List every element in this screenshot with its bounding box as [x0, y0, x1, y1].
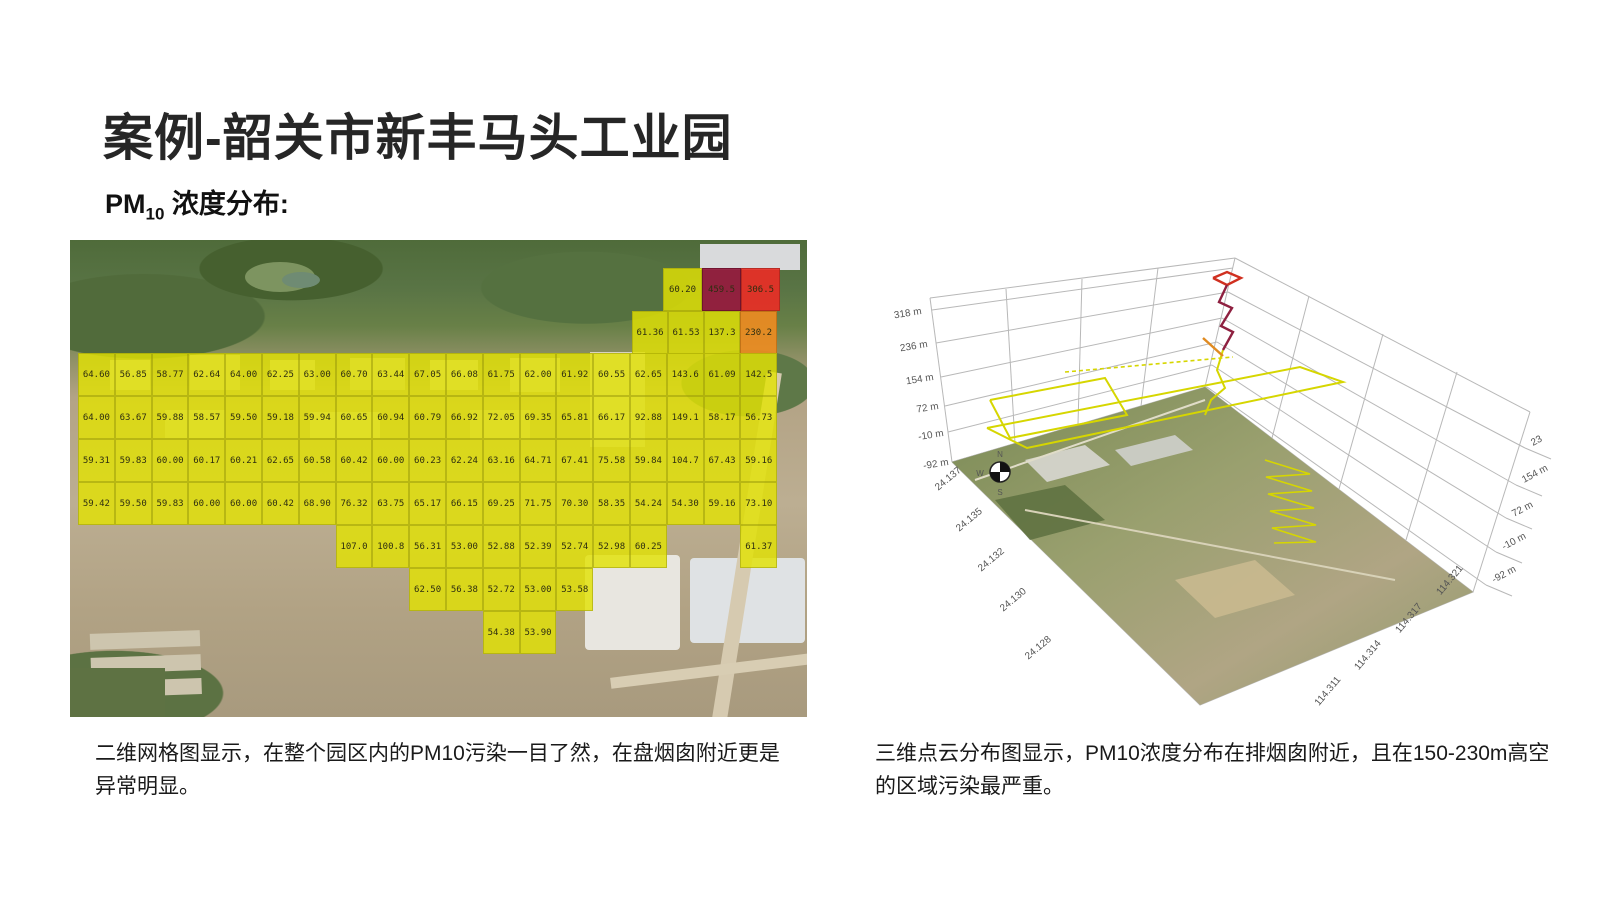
grid-cell: 63.75: [372, 482, 409, 525]
grid-cell: 64.60: [78, 353, 115, 396]
grid-cell: 58.35: [593, 482, 630, 525]
grid-cell: 62.00: [520, 353, 557, 396]
compass-label: W: [976, 469, 984, 478]
grid-cell: 60.23: [409, 439, 446, 482]
grid-cell: 69.25: [483, 482, 520, 525]
grid-cell: 60.79: [409, 396, 446, 439]
plot3d-canvas: NWS318 m236 m154 m72 m-10 m-92 m23154 m7…: [875, 250, 1575, 720]
grid-cell: 61.37: [740, 525, 777, 568]
grid-cell: 59.83: [115, 439, 152, 482]
wall-top-edge-left: [930, 258, 1235, 298]
z-tick-left: 72 m: [916, 401, 940, 415]
grid-cell: 60.94: [372, 396, 409, 439]
caption-2d-grid: 二维网格图显示，在整个园区内的PM10污染一目了然，在盘烟囱附近更是异常明显。: [95, 738, 795, 803]
subtitle-subscript: 10: [146, 204, 165, 223]
grid-cell: 63.00: [299, 353, 336, 396]
grid-cell: 60.20: [663, 268, 702, 311]
grid-cell: 54.30: [667, 482, 704, 525]
grid-cell: 58.57: [188, 396, 225, 439]
grid-cell: 59.16: [740, 439, 777, 482]
grid-cell: 63.44: [372, 353, 409, 396]
grid-cell: 56.31: [409, 525, 446, 568]
slide: 案例-韶关市新丰马头工业园 PM10 浓度分布: 60.20459.5306.5…: [0, 0, 1600, 900]
wall-gridline-overshoot: [1516, 485, 1542, 496]
grid-cell: 56.85: [115, 353, 152, 396]
grid-cell: 68.90: [299, 482, 336, 525]
grid-cell: 62.64: [188, 353, 225, 396]
grid-cell: 59.50: [225, 396, 262, 439]
wall-gridline: [1078, 279, 1082, 424]
grid-cell: 59.31: [78, 439, 115, 482]
grid-cell: 62.50: [409, 568, 446, 611]
compass-label: S: [997, 488, 1002, 497]
grid-cell: 71.75: [520, 482, 557, 525]
subtitle-prefix: PM: [105, 189, 146, 219]
wall-gridline: [941, 318, 1222, 377]
grid-cell: 107.0: [336, 525, 373, 568]
grid-cell: 60.70: [336, 353, 373, 396]
grid-cell: 67.05: [409, 353, 446, 396]
grid-cell: 63.16: [483, 439, 520, 482]
grid-cell: 59.42: [78, 482, 115, 525]
z-tick-left: -10 m: [918, 428, 945, 443]
grid-cell: 60.17: [188, 439, 225, 482]
page-title: 案例-韶关市新丰马头工业园: [103, 98, 733, 170]
grid-cell: 60.00: [372, 439, 409, 482]
grid-cell: 66.08: [446, 353, 483, 396]
wall-gridline: [1141, 268, 1158, 406]
grid-cell: 52.88: [483, 525, 520, 568]
grid-cell: 52.72: [483, 568, 520, 611]
grid-cell: 54.38: [483, 611, 520, 654]
grid-cell: 59.94: [299, 396, 336, 439]
grid-cell: 62.24: [446, 439, 483, 482]
grid-cell: 53.90: [520, 611, 557, 654]
grid-cell: 459.5: [702, 268, 741, 311]
grid-cell: 53.00: [520, 568, 557, 611]
wall-gridline: [936, 292, 1228, 343]
grid-cell: 61.92: [556, 353, 593, 396]
grid-cell: 67.43: [704, 439, 741, 482]
grid-cell: 61.09: [704, 353, 741, 396]
grid-cell: 60.65: [336, 396, 373, 439]
grid-cell: 59.50: [115, 482, 152, 525]
grid-cell: 62.65: [262, 439, 299, 482]
z-tick-right: -10 m: [1500, 531, 1528, 553]
wall-gridline-overshoot: [1486, 585, 1512, 596]
grid-cell: 72.05: [483, 396, 520, 439]
grid-cell: 61.53: [668, 311, 704, 354]
grid-cell: 62.65: [630, 353, 667, 396]
grid-cell: 56.38: [446, 568, 483, 611]
lat-tick: 24.135: [954, 506, 985, 534]
grid-cell: 54.24: [630, 482, 667, 525]
caption-3d-cloud: 三维点云分布图显示，PM10浓度分布在排烟囱附近，且在150-230m高空的区域…: [875, 738, 1555, 803]
grid-cell: 60.55: [593, 353, 630, 396]
grid-cell: 230.2: [740, 311, 777, 354]
flight-path-plume-top: [1213, 272, 1241, 285]
grid-cell: 66.15: [446, 482, 483, 525]
subtitle-suffix: 浓度分布:: [164, 189, 289, 219]
wall-gridline: [1228, 292, 1525, 448]
z-axis-right: [1473, 412, 1530, 592]
grid-cell: 53.00: [446, 525, 483, 568]
flight-path-dotted: [1065, 357, 1233, 372]
grid-cell: 66.17: [593, 396, 630, 439]
wall-gridline: [932, 268, 1233, 310]
wall-gridline-overshoot: [1506, 518, 1532, 529]
wall-gridline-overshoot: [1525, 448, 1551, 459]
grid-cell: 104.7: [667, 439, 704, 482]
lat-tick: 24.132: [976, 546, 1007, 574]
grid-cell: 52.74: [556, 525, 593, 568]
grid-cell: 65.81: [556, 396, 593, 439]
z-tick-left: 318 m: [893, 306, 922, 321]
wall-gridline: [1339, 334, 1383, 489]
grid-cell: 64.00: [78, 396, 115, 439]
grid-cell: 52.98: [593, 525, 630, 568]
grid-cell: 53.58: [556, 568, 593, 611]
satellite-map-2d: 60.20459.5306.561.3661.53137.3230.264.60…: [70, 240, 807, 717]
wall-gridline: [1406, 372, 1457, 540]
z-tick-left: 154 m: [905, 372, 934, 387]
wall-gridline-overshoot: [1496, 552, 1522, 563]
z-tick-right: 154 m: [1520, 463, 1550, 486]
grid-cell: 75.58: [593, 439, 630, 482]
grid-cell: 92.88: [630, 396, 667, 439]
grid-cell: 59.88: [152, 396, 189, 439]
grid-cell: 306.5: [741, 268, 780, 311]
grid-cell: 137.3: [704, 311, 740, 354]
lng-tick: 114.311: [1313, 674, 1344, 708]
grid-cell: 60.25: [630, 525, 667, 568]
subtitle: PM10 浓度分布:: [105, 182, 289, 224]
pm10-grid-overlay: 60.20459.5306.561.3661.53137.3230.264.60…: [70, 240, 807, 717]
grid-cell: 58.77: [152, 353, 189, 396]
grid-cell: 64.71: [520, 439, 557, 482]
grid-cell: 64.00: [225, 353, 262, 396]
grid-cell: 62.25: [262, 353, 299, 396]
z-tick-left: -92 m: [923, 457, 950, 472]
z-tick-left: 236 m: [899, 339, 928, 354]
grid-cell: 60.00: [188, 482, 225, 525]
grid-cell: 56.73: [740, 396, 777, 439]
grid-cell: 149.1: [667, 396, 704, 439]
grid-cell: 142.5: [740, 353, 777, 396]
grid-cell: 52.39: [520, 525, 557, 568]
grid-cell: 67.41: [556, 439, 593, 482]
lat-tick: 24.130: [998, 586, 1029, 614]
grid-cell: 59.18: [262, 396, 299, 439]
lng-tick: 114.314: [1352, 638, 1383, 673]
grid-cell: 100.8: [372, 525, 409, 568]
z-tick-right: 23: [1529, 434, 1544, 449]
grid-cell: 65.17: [409, 482, 446, 525]
compass-label: N: [997, 450, 1003, 459]
grid-cell: 60.00: [152, 439, 189, 482]
grid-cell: 59.84: [630, 439, 667, 482]
grid-cell: 61.36: [632, 311, 668, 354]
grid-cell: 60.42: [336, 439, 373, 482]
grid-cell: 59.16: [704, 482, 741, 525]
grid-cell: 73.10: [740, 482, 777, 525]
grid-cell: 69.35: [520, 396, 557, 439]
z-tick-right: -92 m: [1490, 564, 1518, 586]
grid-cell: 76.32: [336, 482, 373, 525]
point-cloud-plot-3d: NWS318 m236 m154 m72 m-10 m-92 m23154 m7…: [875, 250, 1575, 720]
grid-cell: 60.21: [225, 439, 262, 482]
grid-cell: 63.67: [115, 396, 152, 439]
grid-cell: 59.83: [152, 482, 189, 525]
grid-cell: 58.17: [704, 396, 741, 439]
wall-gridline: [1006, 289, 1015, 443]
lat-tick: 24.128: [1023, 634, 1054, 662]
grid-cell: 66.92: [446, 396, 483, 439]
grid-cell: 143.6: [667, 353, 704, 396]
grid-cell: 60.58: [299, 439, 336, 482]
grid-cell: 60.42: [262, 482, 299, 525]
z-tick-right: 72 m: [1510, 499, 1535, 519]
grid-cell: 61.75: [483, 353, 520, 396]
grid-cell: 70.30: [556, 482, 593, 525]
grid-cell: 60.00: [225, 482, 262, 525]
